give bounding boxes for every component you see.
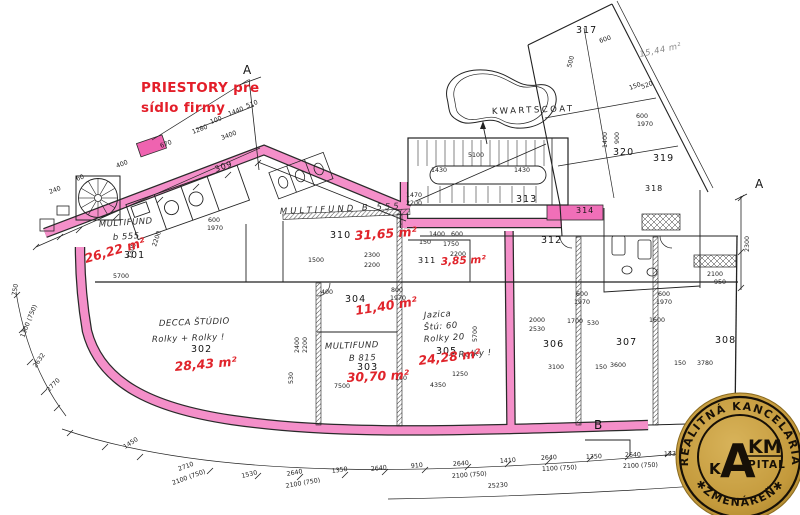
dimension-label: 150 xyxy=(419,239,431,246)
room-label-306: 306 xyxy=(543,339,564,350)
dimension-label: 800 xyxy=(391,287,403,294)
dimension-label: 400 xyxy=(321,289,333,296)
dimension-label: 900 xyxy=(614,132,621,144)
room-label-318: 318 xyxy=(645,184,663,193)
section-marker-A: A xyxy=(243,63,252,77)
dimension-label: 1410 xyxy=(500,457,516,465)
dimension-label: 2710 xyxy=(177,461,194,473)
red-area-note: 3,85 m² xyxy=(441,254,487,268)
room-label-308: 308 xyxy=(715,335,736,346)
dimension-label: 520 xyxy=(640,80,654,91)
dimension-label: 4350 xyxy=(430,382,446,389)
dimension-label: 400 xyxy=(115,159,129,170)
room-label-320: 320 xyxy=(613,147,634,158)
chain-tick xyxy=(207,468,213,474)
dimension-label: 1280 xyxy=(191,124,208,136)
chain-tick xyxy=(225,172,231,178)
dimension-label: 1600 xyxy=(649,317,665,324)
room-label-307: 307 xyxy=(616,337,637,348)
floor-plan-page: KWARTSCOAT 24060400670128034001001440510… xyxy=(0,0,800,515)
dimension-label: 1400 xyxy=(429,231,445,238)
chain-tick xyxy=(193,184,199,190)
pencil-note: DECCA ŠTÚDIO xyxy=(159,315,230,329)
chain-tick xyxy=(157,197,163,203)
dimension-label: 2100 (750) xyxy=(623,462,658,470)
chain-tick xyxy=(33,244,39,250)
dimension-label: 1970 xyxy=(637,121,653,128)
room-label-310: 310 xyxy=(330,230,351,241)
dimension-label: 530 xyxy=(587,320,599,327)
dimension-label: 2100 (750) xyxy=(452,471,487,480)
section-marker-B: B xyxy=(594,418,602,432)
dimension-label: 600 xyxy=(598,35,612,45)
dimension-label: 600 xyxy=(576,291,588,298)
dimension-label: 1350 xyxy=(586,453,602,461)
pencil-note: MULTIFUND xyxy=(99,216,154,230)
seal-logo-pital: PITAL xyxy=(748,459,786,471)
dimension-label: 950 xyxy=(714,279,726,286)
red-title-note: PRIESTORY pre sídlo firmy xyxy=(141,78,259,118)
dimension-label: 1430 xyxy=(431,167,447,174)
dimension-label: 1970 xyxy=(574,299,590,306)
dimension-label: 1970 xyxy=(207,225,223,232)
pencil-note: 15,44 m² xyxy=(639,41,683,60)
pencil-note: Štú: 60 xyxy=(423,319,458,333)
dimension-label: 2640 xyxy=(453,460,469,468)
room-label-314: 314 xyxy=(576,206,594,215)
dimension-label: 600 xyxy=(658,291,670,298)
dimension-label: 2300 xyxy=(744,236,751,252)
pencil-note: Jazica xyxy=(422,309,452,321)
pencil-note: Rolky 20 xyxy=(424,332,466,345)
dimension-label: 500 xyxy=(566,55,576,68)
seal-badge: REALITNÁ KANCELÁRIA ✱ZMENÁREŇ✱ K A KM PI… xyxy=(676,393,800,515)
dimension-label: 2632 xyxy=(32,352,47,369)
dimension-label: 2530 xyxy=(529,326,545,333)
dimension-label: 1400 xyxy=(602,132,609,148)
dimension-label: 2000 xyxy=(529,317,545,324)
dimension-label: 2200 xyxy=(406,200,422,207)
dimension-label: 600 xyxy=(636,113,648,120)
dimension-label: 5700 xyxy=(113,273,129,280)
red-title-line1: PRIESTORY pre xyxy=(141,78,259,98)
dimension-label: 2100 (750) xyxy=(171,468,206,487)
dimension-label: 2770 xyxy=(45,377,61,393)
dimension-label: 3100 xyxy=(548,364,564,371)
dimension-label: 150 xyxy=(595,364,607,371)
dimension-label: 2640 xyxy=(541,454,557,462)
dimension-label: 2640 xyxy=(370,464,387,473)
dimension-label: 1250 xyxy=(452,371,468,378)
red-title-line2: sídlo firmy xyxy=(141,98,259,118)
seal-logo-km: KM xyxy=(748,436,782,458)
pencil-note: B 815 xyxy=(349,353,377,364)
dimension-label: 5700 xyxy=(472,326,479,342)
dimension-label: 600 xyxy=(208,217,220,224)
dimension-label: 150 xyxy=(674,360,686,367)
chain-tick xyxy=(102,444,108,450)
dimension-label: 1750 xyxy=(443,241,459,248)
red-area-notes: 26,22 m²31,65 m²3,85 m²28,43 m²11,40 m²3… xyxy=(83,224,487,385)
room-label-302: 302 xyxy=(191,344,212,355)
dimension-label: 2100 xyxy=(707,271,723,278)
dimension-label: 3780 xyxy=(697,360,713,367)
dimension-label: 1450 xyxy=(122,436,139,451)
pencil-note: Rolky + Rolky ! xyxy=(152,332,225,345)
room-label-312: 312 xyxy=(541,235,562,246)
chain-tick xyxy=(54,405,60,411)
dimension-label: 750 xyxy=(11,283,20,296)
dimension-label: 150 xyxy=(628,81,642,92)
dimension-label: 1970 xyxy=(656,299,672,306)
dimension-label: 240 xyxy=(48,185,62,196)
dimension-label: 1500 xyxy=(308,257,324,264)
room-label-313: 313 xyxy=(516,194,537,205)
pink-block-314 xyxy=(547,205,603,220)
dimension-label: 1350 xyxy=(331,466,348,475)
chain-tick xyxy=(137,454,143,460)
dimension-label: 3400 xyxy=(220,130,237,142)
dimension-label: 910 xyxy=(411,462,424,470)
dimension-label: 5100 xyxy=(468,152,484,159)
dimension-label: 1470 xyxy=(406,192,422,199)
floor-plan-svg: KWARTSCOAT 24060400670128034001001440510… xyxy=(0,0,800,515)
dimension-label: 2300 xyxy=(364,252,380,259)
red-area-note: 28,43 m² xyxy=(174,354,238,374)
dimension-label: 2200 xyxy=(364,262,380,269)
dimension-label: 1430 xyxy=(514,167,530,174)
room-label-311: 311 xyxy=(418,256,436,265)
dimension-label: 2100 (750) xyxy=(285,477,321,490)
dimension-label: 2200 xyxy=(302,337,309,353)
section-marker-A: A xyxy=(755,177,764,191)
dimension-label: 530 xyxy=(288,372,295,384)
dimension-label: 1700 xyxy=(567,318,583,325)
red-area-note: 24,28 m² xyxy=(418,345,482,368)
room-label-317: 317 xyxy=(576,25,597,36)
dimension-label: 600 xyxy=(451,231,463,238)
dimension-label: 2640 xyxy=(625,451,641,459)
dimension-label: 60 xyxy=(75,173,85,182)
dimension-label: 2400 xyxy=(294,337,301,353)
pencil-note: MULTIFUND xyxy=(325,340,379,352)
room-label-319: 319 xyxy=(653,153,674,164)
room-label-309: 309 xyxy=(214,159,234,174)
dimension-label: 25230 xyxy=(488,482,508,490)
dimension-label: 1100 (750) xyxy=(542,464,577,473)
dimension-label: 3600 xyxy=(610,362,626,369)
dimension-label: 2200 xyxy=(151,230,163,247)
